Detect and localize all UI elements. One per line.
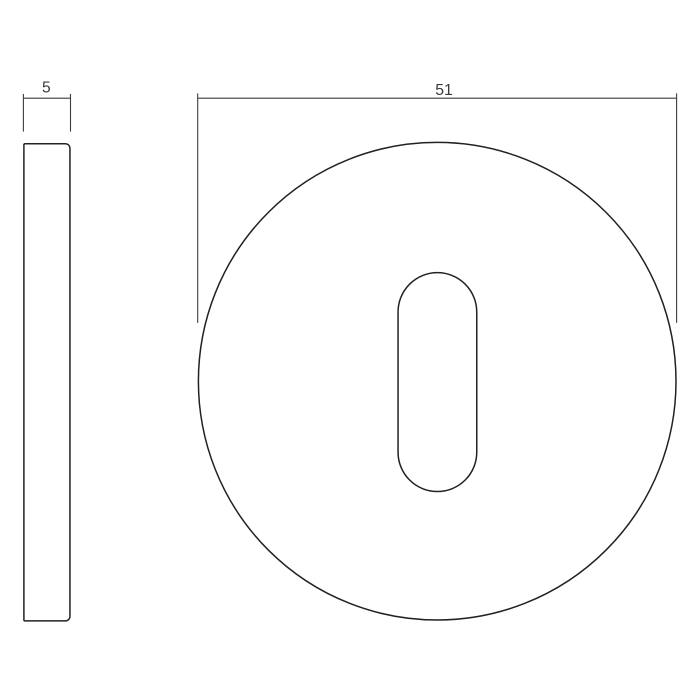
svg-text:5: 5 [42,79,51,96]
svg-text:51: 51 [435,82,453,99]
